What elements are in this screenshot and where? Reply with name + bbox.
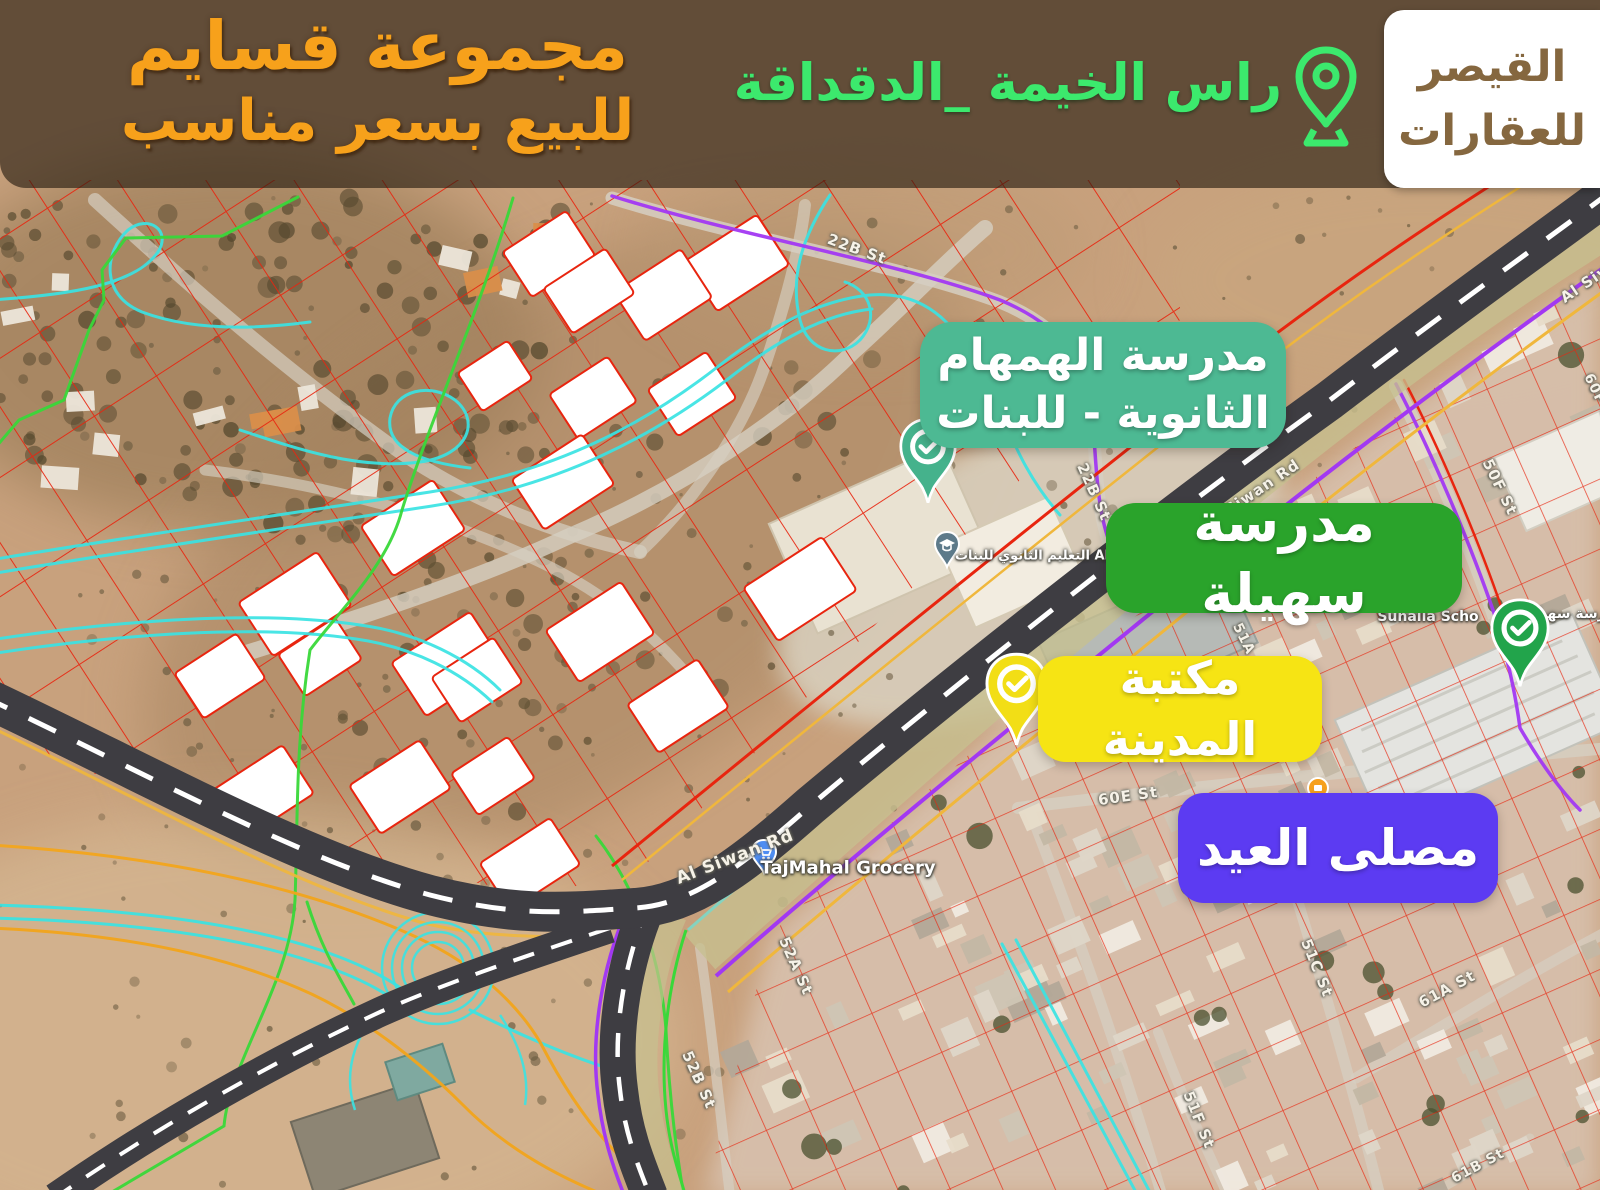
callout-hamham-line1: مدرسة الهمهام — [937, 327, 1268, 385]
callout-eid-musalla: مصلى العيد — [1178, 793, 1498, 903]
callout-suhaila-school: مدرسة سهيلة — [1106, 503, 1462, 613]
location-text: راس الخيمة _الدقداقة — [734, 54, 1282, 113]
brand-logo-box: القيصر للعقارات — [1384, 10, 1600, 188]
title-line2: للبيع بسعر مناسب — [55, 90, 700, 153]
callout-city-library: مكتبة المدينة — [1038, 656, 1322, 762]
callout-hamham-school: مدرسة الهمهام الثانوية - للبنات — [920, 322, 1286, 448]
place-label: TajMahal Grocery — [760, 858, 935, 879]
brand-line2: للعقارات — [1398, 99, 1586, 164]
title-line1: مجموعة قسايم — [55, 4, 700, 90]
poster-title: مجموعة قسايم للبيع بسعر مناسب — [55, 4, 700, 152]
location-pin-icon — [1292, 44, 1360, 152]
callout-musalla-line1: مصلى العيد — [1197, 815, 1479, 881]
suhaila-school-pin — [1490, 597, 1550, 693]
callout-library-line1: مكتبة المدينة — [1038, 648, 1322, 769]
place-label: التعليم الثانوي للبنات Al — [955, 549, 1109, 564]
callout-hamham-line2: الثانوية - للبنات — [936, 385, 1269, 443]
brand-line1: القيصر — [1418, 35, 1567, 100]
callout-suhaila-line1: مدرسة سهيلة — [1106, 487, 1462, 630]
real-estate-map-poster: 22B St22B StAl Siwan RdAl Siwan RdAl Siw… — [0, 0, 1600, 1190]
